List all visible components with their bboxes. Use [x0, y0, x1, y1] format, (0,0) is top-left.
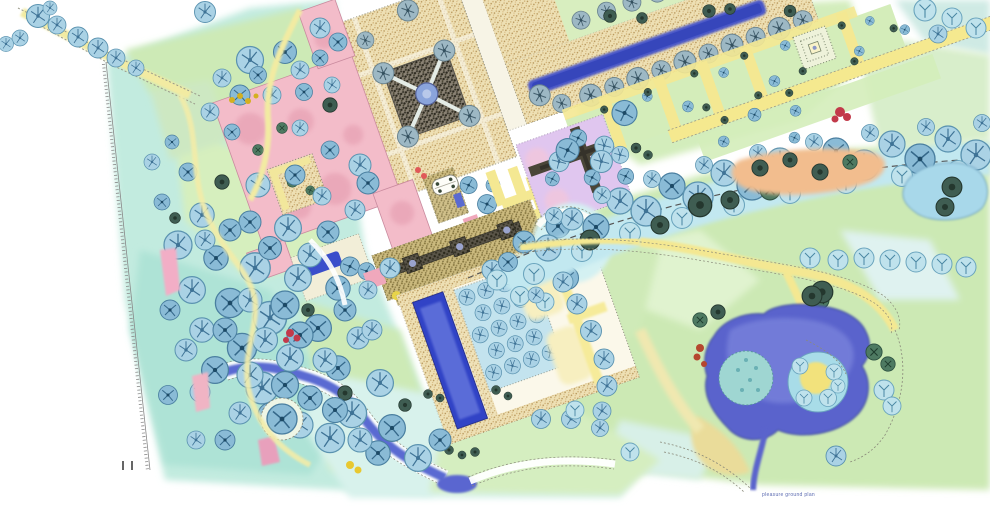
- svg-text:pleasure ground plan: pleasure ground plan: [762, 492, 815, 498]
